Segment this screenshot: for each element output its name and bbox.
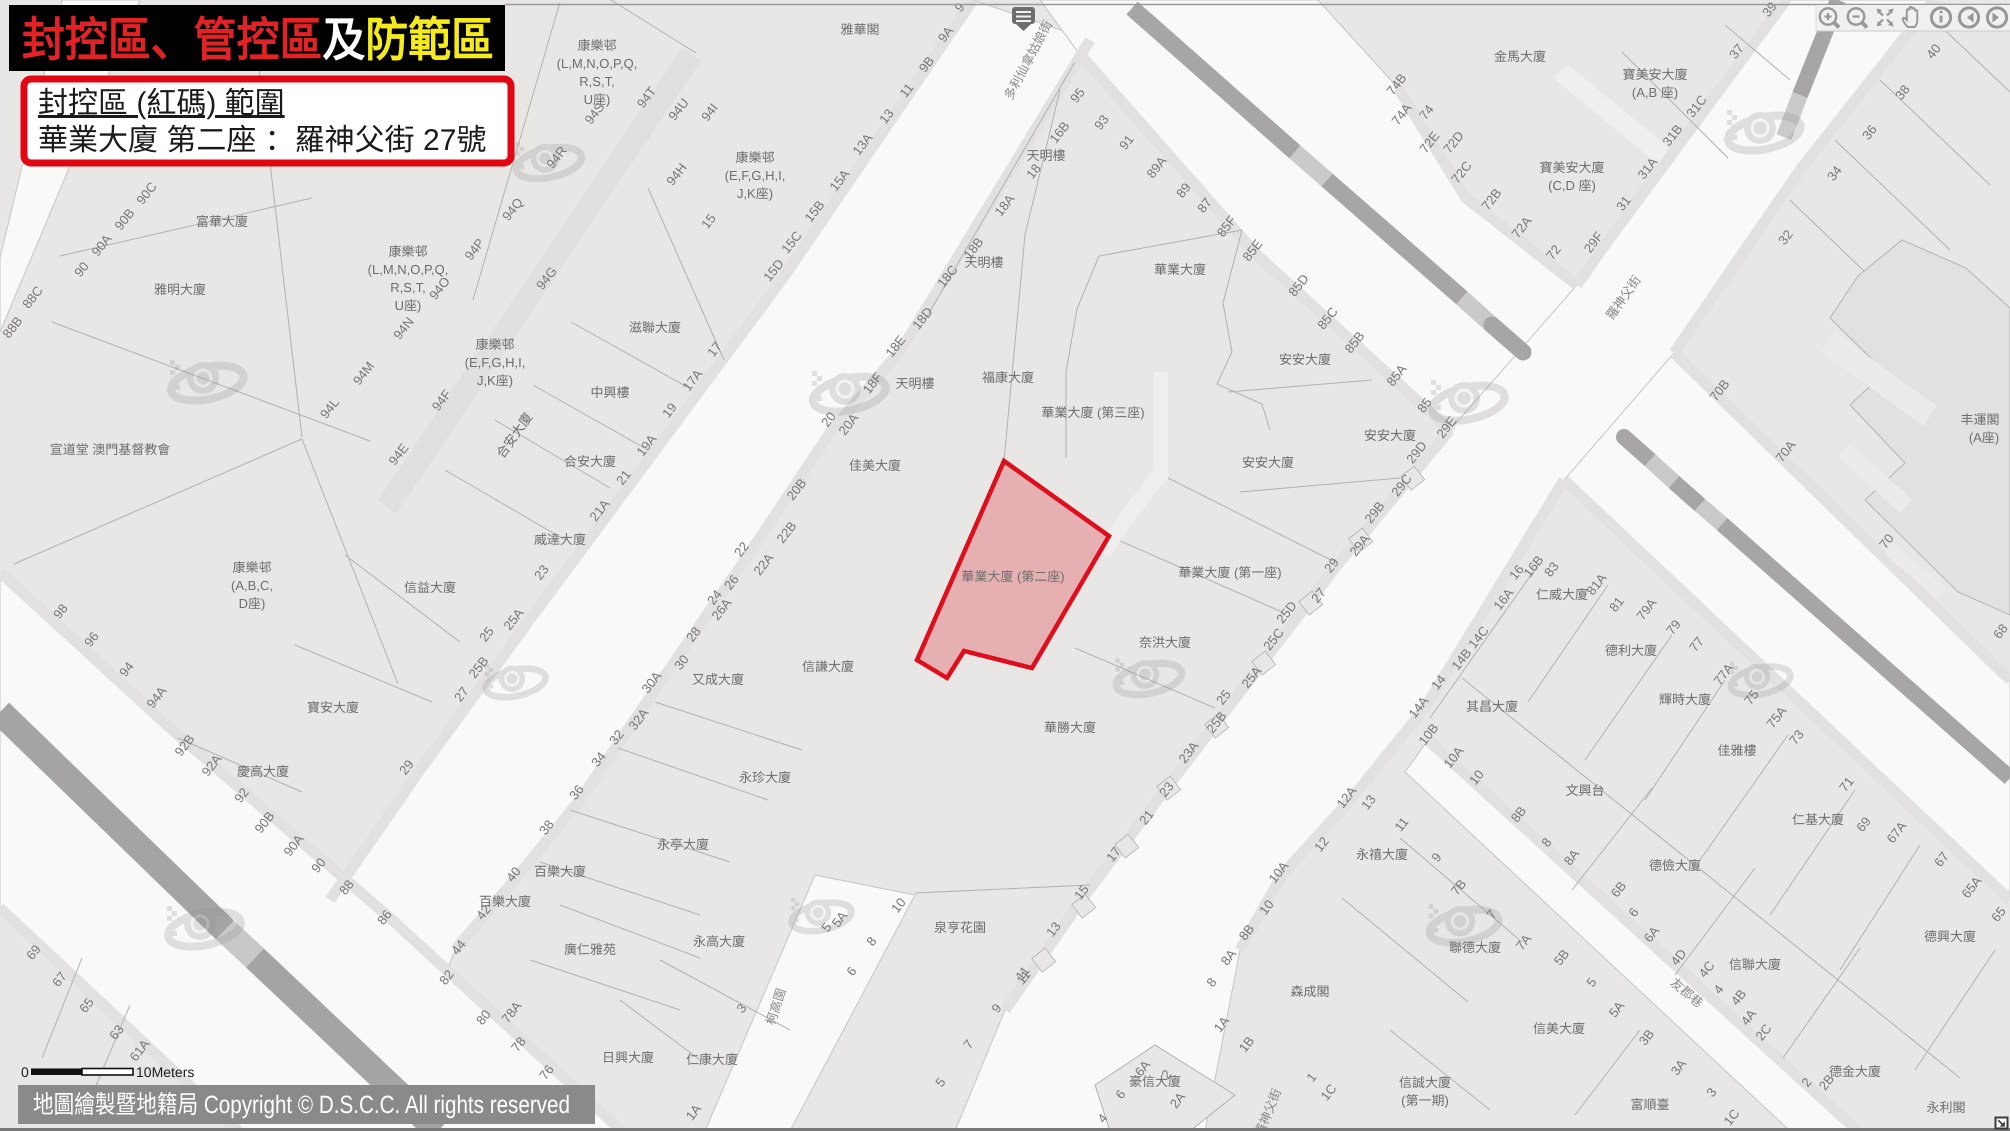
svg-text:仁威大廈: 仁威大廈 (1536, 587, 1588, 602)
svg-text:天明樓: 天明樓 (895, 376, 934, 391)
svg-text:仁康大廈: 仁康大廈 (686, 1052, 738, 1067)
svg-text:富華大廈: 富華大廈 (196, 214, 248, 229)
svg-text:信聯大廈: 信聯大廈 (1729, 957, 1781, 972)
svg-text:(E,F,G,H,I,: (E,F,G,H,I, (725, 168, 786, 183)
svg-text:(A,B 座): (A,B 座) (1632, 85, 1678, 100)
svg-text:信誠大廈: 信誠大廈 (1399, 1075, 1451, 1090)
svg-text:D座): D座) (239, 596, 266, 611)
svg-text:(L,M,N,O,P,Q,: (L,M,N,O,P,Q, (368, 262, 449, 277)
svg-text:安安大廈: 安安大廈 (1279, 352, 1331, 367)
svg-text:寶美安大廈: 寶美安大廈 (1622, 67, 1687, 82)
svg-text:佳雅樓: 佳雅樓 (1717, 743, 1756, 758)
svg-text:華業大廈 (第三座): 華業大廈 (第三座) (1041, 405, 1144, 420)
svg-text:又成大廈: 又成大廈 (692, 672, 744, 687)
svg-text:日興大廈: 日興大廈 (602, 1050, 654, 1065)
svg-text:天明樓: 天明樓 (1026, 148, 1065, 163)
svg-text:R,S,T,: R,S,T, (579, 74, 614, 89)
svg-text:輝時大廈: 輝時大廈 (1659, 692, 1711, 707)
svg-text:仁基大廈: 仁基大廈 (1792, 812, 1844, 827)
svg-text:中興樓: 中興樓 (590, 385, 629, 400)
svg-text:泉亨花園: 泉亨花園 (934, 920, 986, 935)
svg-text:安安大廈: 安安大廈 (1364, 428, 1416, 443)
svg-text:信美大廈: 信美大廈 (1533, 1021, 1585, 1036)
svg-text:康樂邨: 康樂邨 (475, 337, 514, 352)
svg-text:永亭大廈: 永亭大廈 (657, 837, 709, 852)
svg-text:其昌大廈: 其昌大廈 (1466, 699, 1518, 714)
svg-text:安安大廈: 安安大廈 (1242, 455, 1294, 470)
svg-text:德興大廈: 德興大廈 (1924, 929, 1976, 944)
svg-text:華業大廈: 華業大廈 (1154, 262, 1206, 277)
svg-text:富順臺: 富順臺 (1630, 1097, 1669, 1112)
svg-text:華業大廈 (第二座): 華業大廈 (第二座) (961, 569, 1064, 584)
svg-text:永利閣: 永利閣 (1926, 1100, 1965, 1115)
svg-text:康樂邨: 康樂邨 (232, 560, 271, 575)
svg-text:永禧大廈: 永禧大廈 (1356, 847, 1408, 862)
svg-text:雅華閣: 雅華閣 (840, 22, 879, 37)
svg-text:德利大廈: 德利大廈 (1605, 643, 1657, 658)
svg-text:福康大廈: 福康大廈 (982, 370, 1034, 385)
svg-text:宣道堂 澳門基督教會: 宣道堂 澳門基督教會 (50, 442, 171, 457)
svg-text:德金大廈: 德金大廈 (1829, 1064, 1881, 1079)
svg-text:慶高大廈: 慶高大廈 (237, 764, 289, 779)
svg-text:廣仁雅苑: 廣仁雅苑 (564, 942, 616, 957)
svg-text:封控區 (紅碼) 範圍: 封控區 (紅碼) 範圍 (38, 87, 285, 120)
svg-text:J,K座): J,K座) (737, 186, 773, 201)
svg-text:(L,M,N,O,P,Q,: (L,M,N,O,P,Q, (557, 56, 638, 71)
svg-text:0: 0 (21, 1064, 29, 1080)
svg-text:寶美安大廈: 寶美安大廈 (1539, 160, 1604, 175)
svg-text:(E,F,G,H,I,: (E,F,G,H,I, (465, 355, 526, 370)
svg-text:信益大廈: 信益大廈 (404, 580, 456, 595)
svg-text:康樂邨: 康樂邨 (388, 244, 427, 259)
svg-text:丰運閣: 丰運閣 (1960, 412, 1999, 427)
svg-text:(C,D 座): (C,D 座) (1548, 178, 1596, 193)
svg-text:永珍大廈: 永珍大廈 (739, 770, 791, 785)
svg-text:10Meters: 10Meters (136, 1064, 194, 1080)
svg-text:R,S,T,: R,S,T, (390, 280, 425, 295)
svg-text:雅明大廈: 雅明大廈 (154, 282, 206, 297)
svg-text:信謙大廈: 信謙大廈 (802, 659, 854, 674)
svg-text:(A,B,C,: (A,B,C, (231, 578, 273, 593)
svg-text:(第一期): (第一期) (1401, 1093, 1449, 1108)
svg-text:封控區、管控區及防範區: 封控區、管控區及防範區 (22, 13, 494, 66)
svg-text:J,K座): J,K座) (477, 373, 513, 388)
svg-text:U座): U座) (395, 298, 422, 313)
svg-text:百樂大廈: 百樂大廈 (534, 864, 586, 879)
svg-text:森成閣: 森成閣 (1290, 984, 1329, 999)
svg-text:華勝大廈: 華勝大廈 (1044, 720, 1096, 735)
svg-text:文興台: 文興台 (1565, 783, 1604, 798)
svg-text:聯德大廈: 聯德大廈 (1449, 940, 1501, 955)
svg-text:(A座): (A座) (1969, 430, 1999, 445)
svg-text:金馬大廈: 金馬大廈 (1494, 49, 1546, 64)
svg-text:威達大廈: 威達大廈 (534, 532, 586, 547)
svg-text:華業大廈 第二座 ：羅神父街 27號: 華業大廈 第二座 ：羅神父街 27號 (38, 124, 486, 157)
svg-text:合安大廈: 合安大廈 (564, 454, 616, 469)
svg-text:寶安大廈: 寶安大廈 (307, 700, 359, 715)
svg-text:華業大廈 (第一座): 華業大廈 (第一座) (1178, 565, 1281, 580)
svg-text:地圖繪製暨地籍局 Copyright © D.S.C.C.: 地圖繪製暨地籍局 Copyright © D.S.C.C. All rights… (33, 1091, 570, 1119)
svg-text:奈洪大廈: 奈洪大廈 (1139, 635, 1191, 650)
svg-text:德儉大廈: 德儉大廈 (1649, 858, 1701, 873)
svg-text:永高大廈: 永高大廈 (693, 934, 745, 949)
svg-text:康樂邨: 康樂邨 (577, 38, 616, 53)
svg-text:康樂邨: 康樂邨 (735, 150, 774, 165)
svg-text:佳美大廈: 佳美大廈 (849, 458, 901, 473)
svg-text:滋聯大廈: 滋聯大廈 (629, 320, 681, 335)
